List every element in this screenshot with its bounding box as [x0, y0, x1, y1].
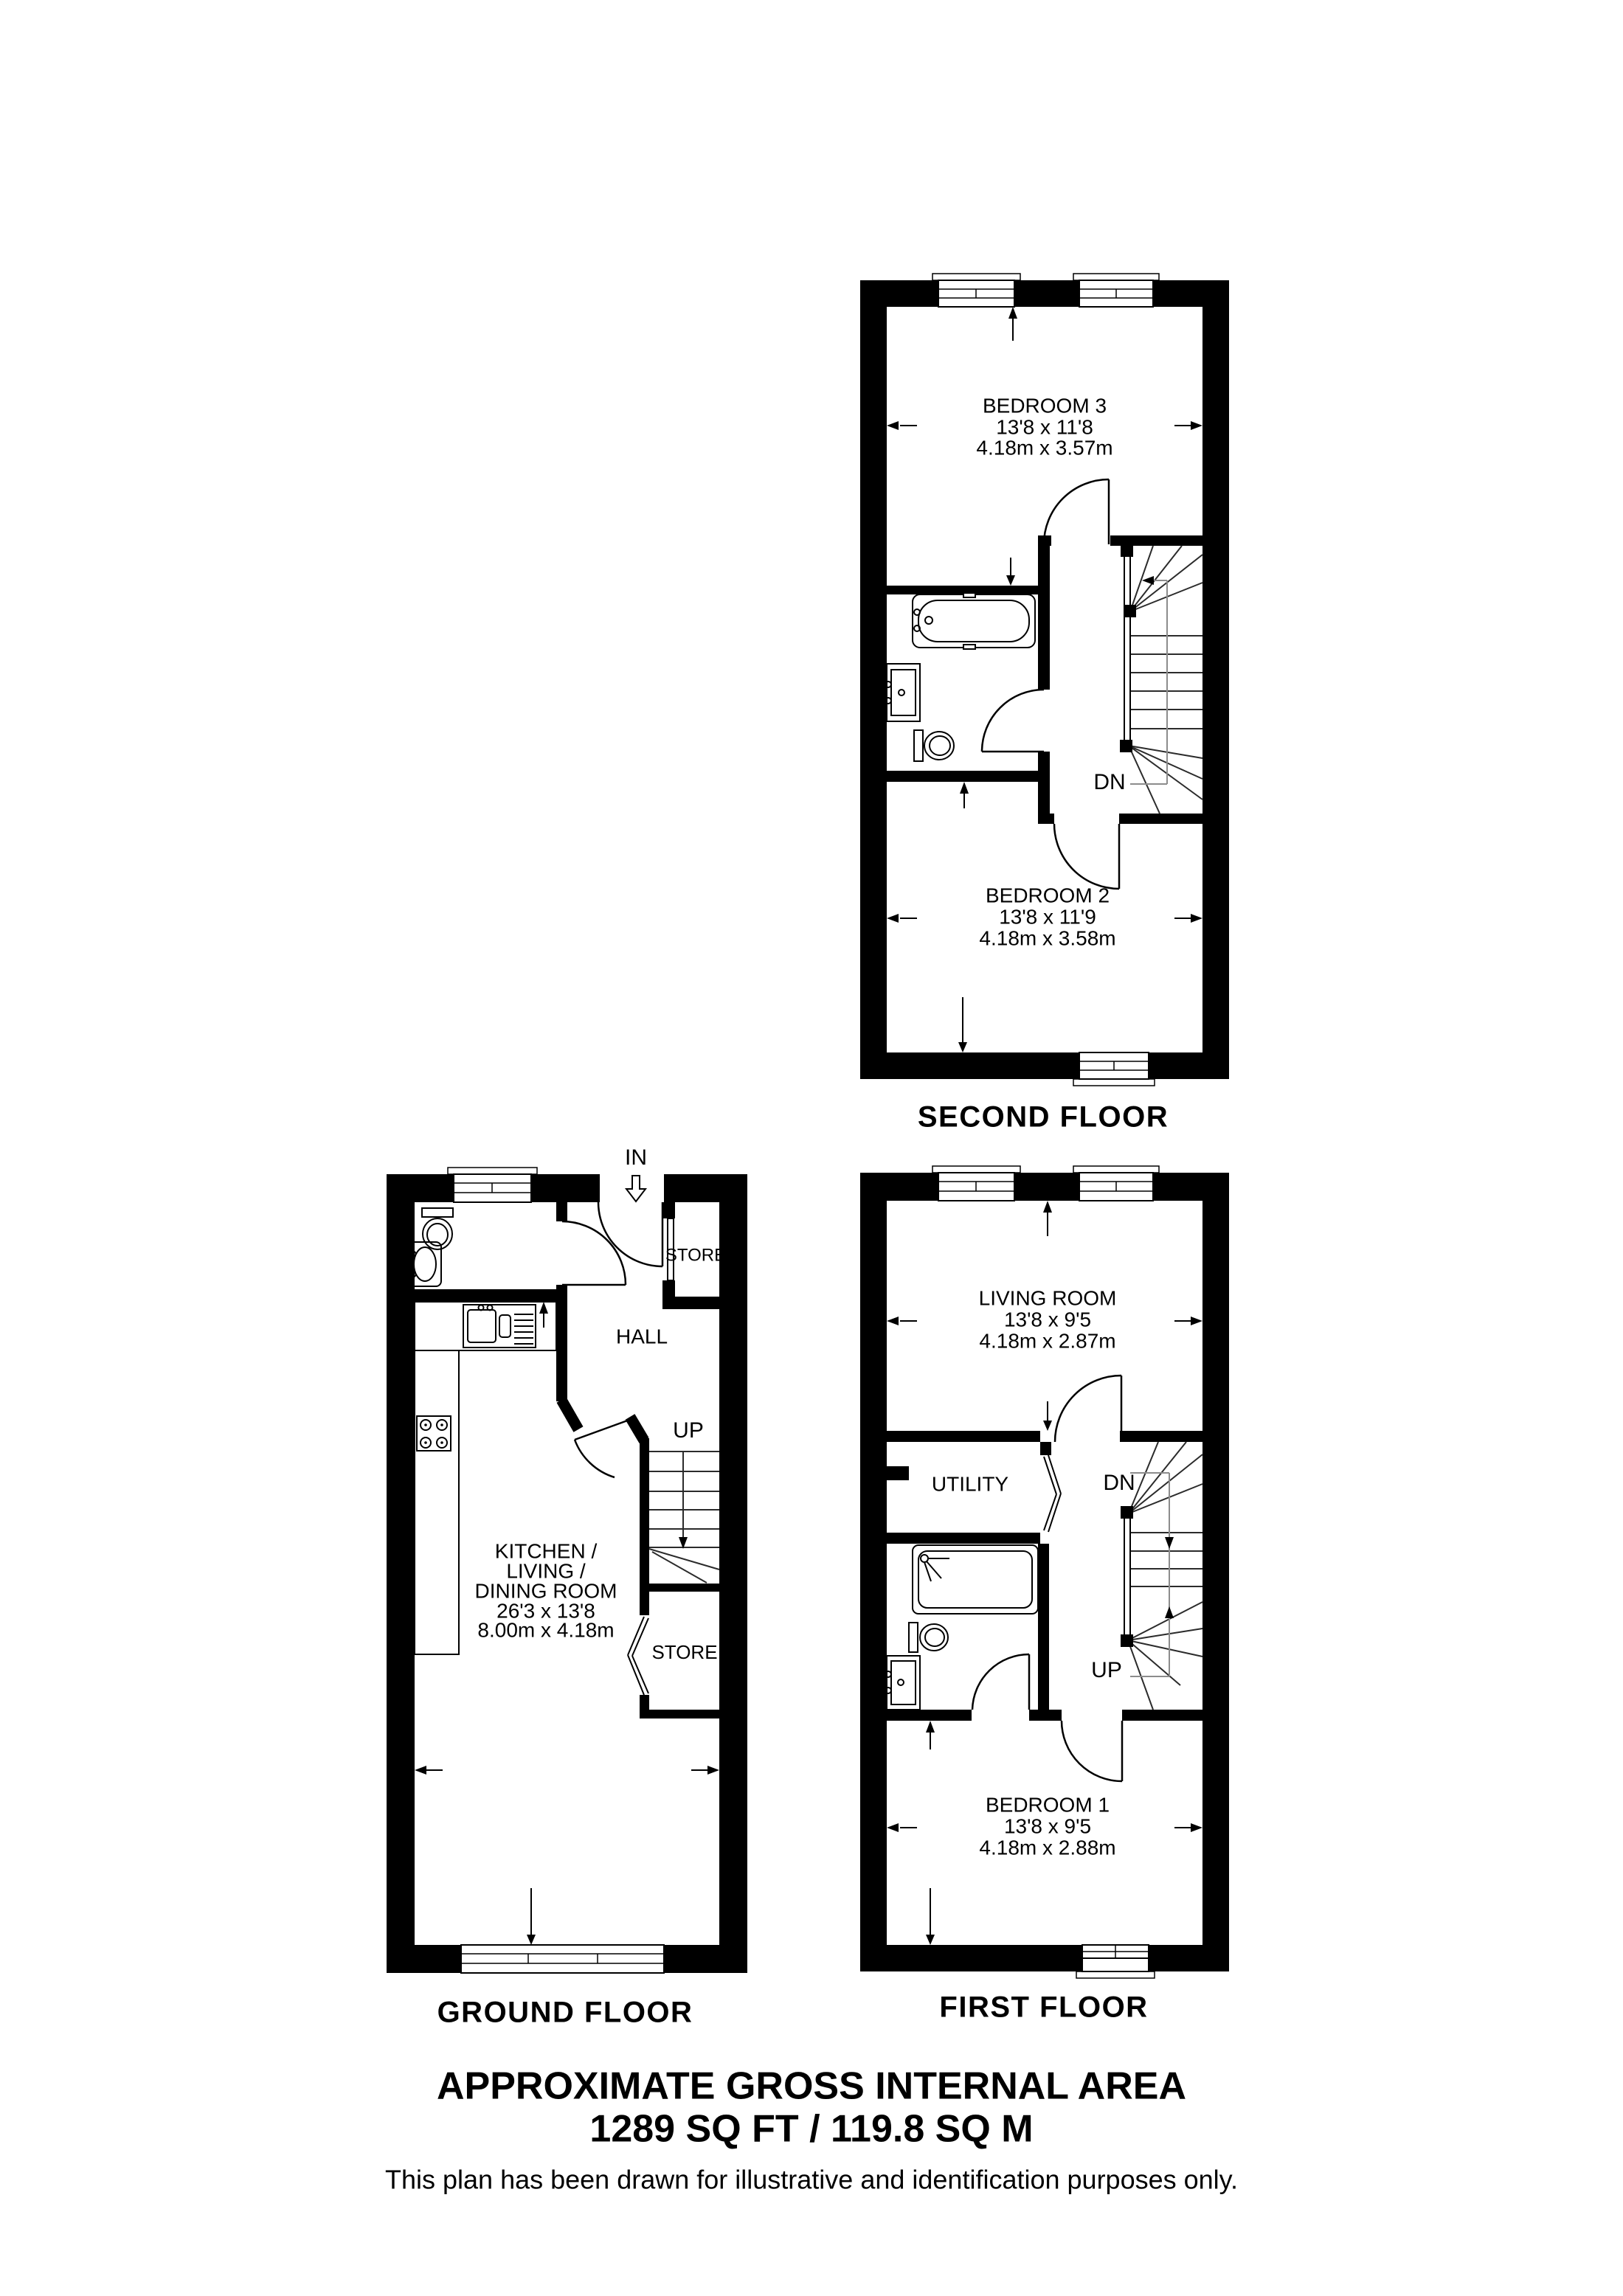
bedroom2-metric: 4.18m x 3.58m — [979, 926, 1115, 949]
bedroom3-metric: 4.18m x 3.57m — [976, 436, 1112, 459]
bedroom3-name: BEDROOM 3 — [983, 394, 1107, 417]
living-room-imperial: 13'8 x 9'5 — [1004, 1308, 1091, 1331]
bedroom3-imperial: 13'8 x 11'8 — [996, 415, 1093, 438]
store-stairs-label: STORE — [651, 1641, 717, 1663]
bedroom2-imperial: 13'8 x 11'9 — [999, 905, 1096, 928]
stair-rail — [1124, 1518, 1130, 1637]
floorplan-canvas: BEDROOM 3 13'8 x 11'8 4.18m x 3.57m DN B… — [0, 0, 1623, 2296]
in-label: IN — [625, 1145, 647, 1170]
living-room-name: LIVING ROOM — [979, 1286, 1117, 1309]
footer-area: 1289 SQ FT / 119.8 SQ M — [589, 2108, 1033, 2151]
ground-up-label: UP — [673, 1418, 704, 1443]
page-background — [0, 0, 1623, 2296]
first-floor-dn-label: DN — [1103, 1471, 1135, 1495]
bedroom2-name: BEDROOM 2 — [986, 884, 1110, 906]
store-top-label: STORE — [665, 1245, 726, 1265]
footer-title: APPROXIMATE GROSS INTERNAL AREA — [437, 2065, 1186, 2108]
ground-floor-title: GROUND FLOOR — [437, 1997, 693, 2029]
second-floor-dn-label: DN — [1093, 770, 1125, 794]
hall-label: HALL — [616, 1325, 668, 1348]
first-floor-up-label: UP — [1091, 1658, 1122, 1682]
utility-label: UTILITY — [932, 1472, 1009, 1495]
living-room-metric: 4.18m x 2.87m — [979, 1329, 1115, 1352]
stair-rail — [1124, 556, 1130, 743]
bedroom1-imperial: 13'8 x 9'5 — [1004, 1814, 1091, 1837]
kitchen-metric: 8.00m x 4.18m — [477, 1618, 614, 1641]
footer-disclaimer: This plan has been drawn for illustrativ… — [385, 2165, 1238, 2195]
bedroom1-name: BEDROOM 1 — [986, 1793, 1110, 1816]
first-floor-title: FIRST FLOOR — [939, 1991, 1148, 2024]
bedroom1-metric: 4.18m x 2.88m — [979, 1836, 1115, 1859]
second-floor-title: SECOND FLOOR — [918, 1101, 1169, 1134]
floorplan-page: BEDROOM 3 13'8 x 11'8 4.18m x 3.57m DN B… — [0, 0, 1623, 2296]
